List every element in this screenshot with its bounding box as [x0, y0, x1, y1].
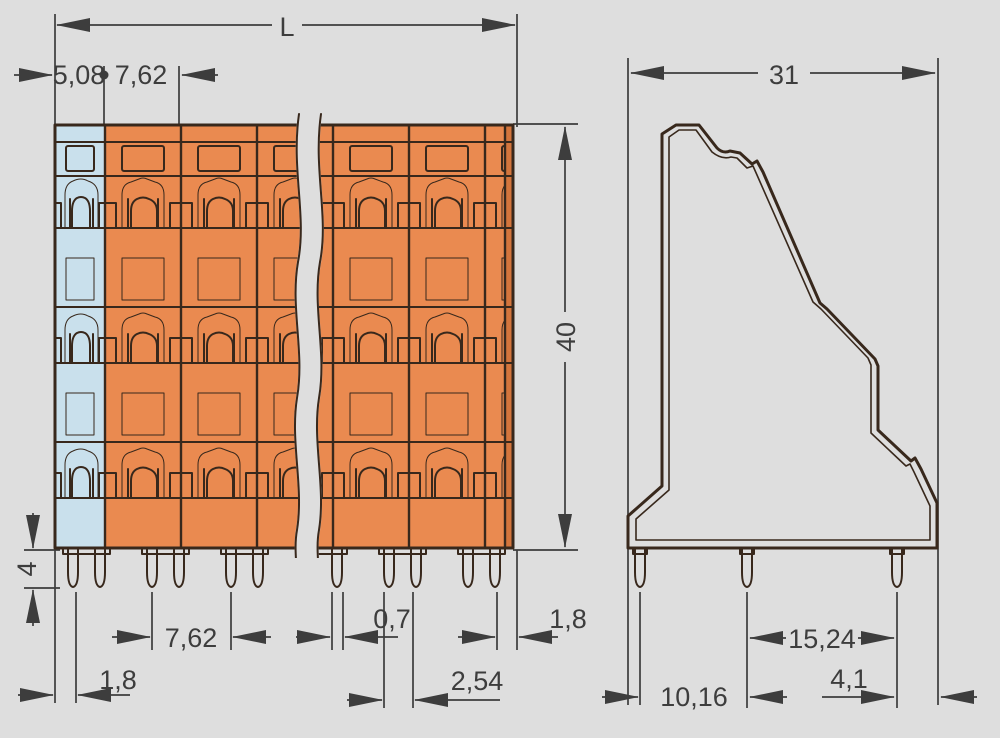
- dim-pin-gap-label: 2,54: [451, 666, 504, 696]
- dim-boundary-dot: [100, 71, 109, 80]
- dim-pin-spacing-front-label: 10,16: [660, 682, 728, 712]
- technical-drawing-canvas: L 5,08 7,62 40 4 7,62: [0, 0, 1000, 738]
- dim-pin-spacing-rear-label: 15,24: [788, 624, 856, 654]
- dim-depth-label: 31: [769, 60, 799, 90]
- dim-pin-offset-right-label: 1,8: [549, 604, 587, 634]
- dim-total-length-label: L: [279, 12, 294, 42]
- dim-height-label: 40: [551, 322, 581, 352]
- dim-pole-pitch-label: 7,62: [115, 60, 168, 90]
- dim-pin-offset-left-label: 1,8: [99, 665, 137, 695]
- housing-front: [55, 114, 561, 596]
- dim-marker-pitch-label: 5,08: [53, 60, 106, 90]
- dim-pin-length-label: 4: [12, 561, 42, 576]
- terminal-block-drawing: L 5,08 7,62 40 4 7,62: [0, 0, 1000, 738]
- dim-pin-edge-offset-label: 4,1: [830, 664, 868, 694]
- dim-pole-pitch-bottom-label: 7,62: [165, 623, 218, 653]
- break-symbol: [295, 114, 323, 596]
- dim-pin-width-label: 0,7: [373, 604, 411, 634]
